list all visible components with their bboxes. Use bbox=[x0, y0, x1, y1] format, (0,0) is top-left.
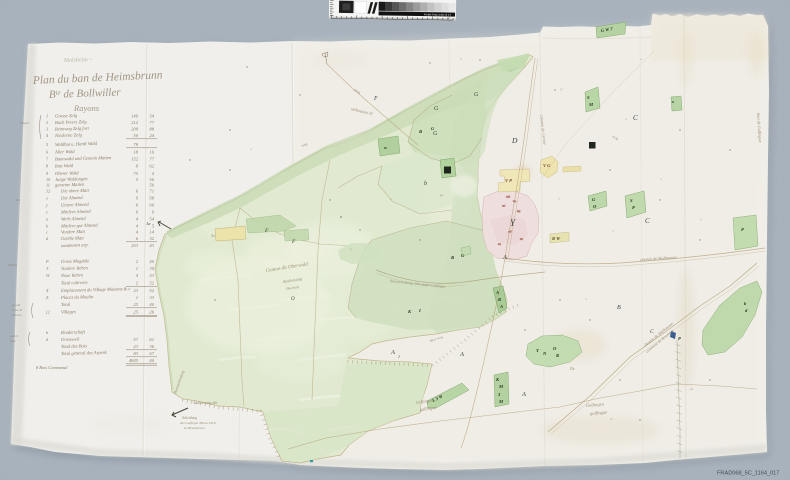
svg-text:Grossweil: Grossweil bbox=[61, 336, 80, 342]
svg-text:3: 3 bbox=[558, 197, 560, 201]
svg-text:S: S bbox=[587, 95, 590, 100]
svg-text:R W: R W bbox=[552, 236, 561, 241]
svg-text:30: 30 bbox=[149, 266, 154, 271]
svg-text:D: D bbox=[511, 136, 518, 145]
svg-text:b: b bbox=[46, 224, 48, 229]
svg-text:z: z bbox=[45, 210, 48, 215]
svg-text:V G: V G bbox=[543, 163, 551, 168]
svg-text:2: 2 bbox=[390, 197, 392, 201]
svg-text:A: A bbox=[499, 304, 503, 309]
svg-text:a: a bbox=[672, 100, 674, 104]
svg-text:52: 52 bbox=[149, 281, 154, 286]
svg-text:40: 40 bbox=[149, 259, 154, 264]
svg-text:Neue Reben: Neue Reben bbox=[60, 272, 84, 278]
svg-text:B: B bbox=[418, 129, 422, 134]
svg-text:1a: 1a bbox=[146, 221, 151, 226]
svg-text:33: 33 bbox=[149, 295, 154, 300]
svg-text:De: De bbox=[569, 366, 575, 371]
svg-text:a: a bbox=[585, 297, 587, 301]
svg-text:A: A bbox=[521, 391, 526, 398]
svg-text:zusammen arp.: zusammen arp. bbox=[60, 242, 89, 248]
svg-text:32: 32 bbox=[149, 236, 154, 241]
svg-text:1: 1 bbox=[46, 114, 48, 119]
svg-text:18: 18 bbox=[133, 150, 138, 155]
svg-text:149: 149 bbox=[131, 114, 139, 119]
svg-text:A: A bbox=[390, 349, 395, 356]
svg-text:S: S bbox=[630, 198, 633, 203]
svg-text:Villages: Villages bbox=[61, 309, 76, 314]
svg-text:209: 209 bbox=[131, 127, 139, 132]
svg-text:25: 25 bbox=[133, 302, 138, 307]
svg-text:b: b bbox=[46, 330, 48, 335]
svg-text:60: 60 bbox=[149, 203, 154, 208]
svg-text:26: 26 bbox=[149, 310, 154, 315]
svg-text:Oberer Wald: Oberer Wald bbox=[55, 170, 79, 176]
svg-text:4: 4 bbox=[46, 133, 48, 138]
svg-text:P: P bbox=[741, 227, 744, 232]
svg-text:Werb Almend: Werb Almend bbox=[61, 216, 86, 222]
svg-text:77: 77 bbox=[149, 120, 154, 125]
svg-text:cm: cm bbox=[447, 18, 450, 20]
svg-text:C: C bbox=[633, 114, 638, 122]
svg-text:o: o bbox=[340, 214, 342, 219]
svg-text:12: 12 bbox=[46, 189, 50, 194]
svg-text:14: 14 bbox=[149, 230, 154, 235]
svg-text:40: 40 bbox=[149, 358, 154, 363]
svg-text:23: 23 bbox=[133, 288, 138, 293]
svg-text:C: C bbox=[645, 217, 650, 225]
svg-text:77: 77 bbox=[149, 157, 154, 162]
svg-text:62: 62 bbox=[149, 164, 154, 169]
svg-text:V P: V P bbox=[505, 178, 512, 183]
svg-text:Vordere Reben: Vordere Reben bbox=[61, 265, 89, 271]
svg-text:58: 58 bbox=[149, 196, 154, 201]
svg-text:Grosse Zelg: Grosse Zelg bbox=[55, 113, 78, 119]
svg-text:Die Almend: Die Almend bbox=[60, 195, 84, 201]
svg-text:Bruderschaft: Bruderschaft bbox=[61, 329, 86, 335]
svg-text:1: 1 bbox=[398, 354, 400, 359]
svg-text:P: P bbox=[45, 259, 49, 264]
svg-text:N: N bbox=[542, 351, 547, 356]
svg-text:R: R bbox=[556, 353, 559, 358]
svg-text:P: P bbox=[632, 205, 635, 210]
svg-text:Molsheim ~: Molsheim ~ bbox=[63, 57, 93, 64]
svg-text:total de: total de bbox=[12, 308, 23, 312]
svg-text:Ausloesung der: Ausloesung der bbox=[192, 400, 218, 405]
svg-text:24: 24 bbox=[149, 133, 154, 138]
svg-text:A: A bbox=[502, 254, 507, 261]
svg-text:b: b bbox=[424, 181, 427, 187]
svg-text:4: 4 bbox=[625, 117, 627, 121]
svg-text:Mittlere gut Almend: Mittlere gut Almend bbox=[60, 223, 99, 229]
svg-text:52: 52 bbox=[149, 288, 154, 293]
svg-text:P: P bbox=[678, 336, 681, 341]
svg-text:67: 67 bbox=[149, 351, 154, 356]
svg-text:152: 152 bbox=[131, 157, 139, 162]
svg-text:3: 3 bbox=[460, 57, 462, 61]
svg-text:Buch Peters Zelg: Buch Peters Zelg bbox=[55, 119, 87, 125]
svg-text:Aller Wald: Aller Wald bbox=[54, 149, 75, 155]
svg-text:1: 1 bbox=[136, 266, 138, 271]
svg-text:Total: Total bbox=[61, 302, 71, 307]
svg-text:autres: autres bbox=[10, 334, 19, 338]
svg-text:2: 2 bbox=[660, 177, 662, 181]
svg-text:Rott Wald: Rott Wald bbox=[54, 163, 74, 169]
svg-text:G: G bbox=[474, 92, 479, 98]
svg-text:X: X bbox=[45, 288, 49, 293]
svg-text:G: G bbox=[433, 131, 438, 137]
svg-text:Kodak Gray scale Q-13: Kodak Gray scale Q-13 bbox=[424, 12, 452, 16]
svg-text:53: 53 bbox=[149, 273, 154, 278]
svg-text:5: 5 bbox=[612, 229, 614, 233]
svg-text:A: A bbox=[495, 290, 499, 295]
svg-text:Die obere Matt: Die obere Matt bbox=[60, 188, 90, 194]
svg-text:3: 3 bbox=[46, 127, 48, 132]
svg-text:Vordere Matt: Vordere Matt bbox=[61, 229, 86, 235]
svg-text:88: 88 bbox=[149, 127, 154, 132]
svg-text:de: de bbox=[690, 387, 694, 391]
svg-text:c: c bbox=[46, 230, 48, 235]
svg-text:Total des Bois: Total des Bois bbox=[61, 343, 87, 349]
svg-text:B: B bbox=[617, 305, 621, 311]
svg-text:5: 5 bbox=[46, 142, 48, 147]
svg-text:57: 57 bbox=[133, 337, 138, 342]
svg-text:Niederste Zelg: Niederste Zelg bbox=[54, 132, 83, 138]
svg-text:4845: 4845 bbox=[129, 358, 139, 363]
svg-text:culture: culture bbox=[12, 313, 22, 317]
svg-text:8 Bois Communal: 8 Bois Communal bbox=[36, 365, 68, 370]
svg-text:54: 54 bbox=[149, 114, 154, 119]
svg-text:Vignes: Vignes bbox=[8, 263, 18, 267]
svg-text:F: F bbox=[373, 96, 378, 102]
svg-text:bois: bois bbox=[10, 339, 16, 343]
svg-text:16: 16 bbox=[149, 150, 154, 155]
svg-text:11: 11 bbox=[46, 183, 50, 188]
svg-text:Reimweg Zelg fort: Reimweg Zelg fort bbox=[54, 126, 90, 132]
svg-text:25: 25 bbox=[133, 310, 138, 315]
svg-text:83: 83 bbox=[133, 351, 138, 356]
svg-text:Pre: Pre bbox=[15, 198, 21, 202]
svg-text:212: 212 bbox=[131, 120, 139, 125]
svg-text:.: . bbox=[210, 177, 211, 181]
svg-text:71: 71 bbox=[149, 189, 154, 194]
svg-text:Scheidung: Scheidung bbox=[182, 416, 197, 420]
svg-text:36: 36 bbox=[149, 344, 154, 349]
svg-text:g: g bbox=[350, 247, 352, 251]
svg-text:F: F bbox=[291, 239, 296, 245]
svg-text:40: 40 bbox=[149, 302, 154, 307]
svg-text:y: y bbox=[45, 203, 48, 208]
svg-text:grand: grand bbox=[12, 303, 20, 307]
svg-text:56: 56 bbox=[149, 177, 154, 182]
svg-text:253: 253 bbox=[131, 243, 139, 248]
svg-text:56: 56 bbox=[149, 183, 154, 188]
svg-text:43: 43 bbox=[149, 243, 154, 248]
svg-text:W: W bbox=[46, 273, 50, 278]
svg-text:I: I bbox=[418, 308, 421, 313]
svg-text:5a: 5a bbox=[211, 234, 215, 238]
svg-text:R: R bbox=[498, 297, 501, 302]
svg-text:2: 2 bbox=[46, 120, 48, 125]
svg-text:a: a bbox=[46, 217, 48, 222]
svg-text:61: 61 bbox=[149, 337, 154, 342]
svg-text:Mittlere Almend: Mittlere Almend bbox=[60, 209, 92, 215]
svg-text:F: F bbox=[264, 228, 269, 234]
svg-text:Total cultivees: Total cultivees bbox=[61, 280, 88, 286]
svg-text:78: 78 bbox=[133, 142, 138, 147]
svg-text:O: O bbox=[291, 297, 295, 302]
svg-text:B: B bbox=[450, 255, 454, 260]
svg-text:gemeine Matten: gemeine Matten bbox=[55, 182, 85, 188]
svg-text:Zelgen: Zelgen bbox=[20, 121, 30, 125]
svg-text:23: 23 bbox=[133, 344, 138, 349]
svg-text:zu Heimsbrunn: zu Heimsbrunn bbox=[183, 426, 205, 430]
svg-text:50: 50 bbox=[133, 133, 138, 138]
svg-text:FRAD068_5C_1164_017: FRAD068_5C_1164_017 bbox=[717, 471, 779, 477]
svg-text:des Galfinger Banns Theil: des Galfinger Banns Theil bbox=[180, 421, 216, 425]
svg-text:A: A bbox=[459, 351, 464, 358]
svg-text:G: G bbox=[434, 106, 439, 112]
svg-text:Gross Magdale: Gross Magdale bbox=[61, 258, 89, 264]
svg-text:Garthe Matt: Garthe Matt bbox=[61, 235, 85, 241]
svg-text:g: g bbox=[700, 217, 702, 221]
svg-text:75: 75 bbox=[133, 171, 138, 176]
svg-text:Rayons: Rayons bbox=[73, 103, 100, 113]
svg-text:Places du Moulin: Places du Moulin bbox=[60, 294, 94, 300]
svg-text:[2: [2 bbox=[46, 310, 50, 315]
svg-text:Untere Almend: Untere Almend bbox=[61, 202, 90, 208]
svg-text:x: x bbox=[45, 196, 48, 201]
svg-text:1: 1 bbox=[136, 295, 138, 300]
